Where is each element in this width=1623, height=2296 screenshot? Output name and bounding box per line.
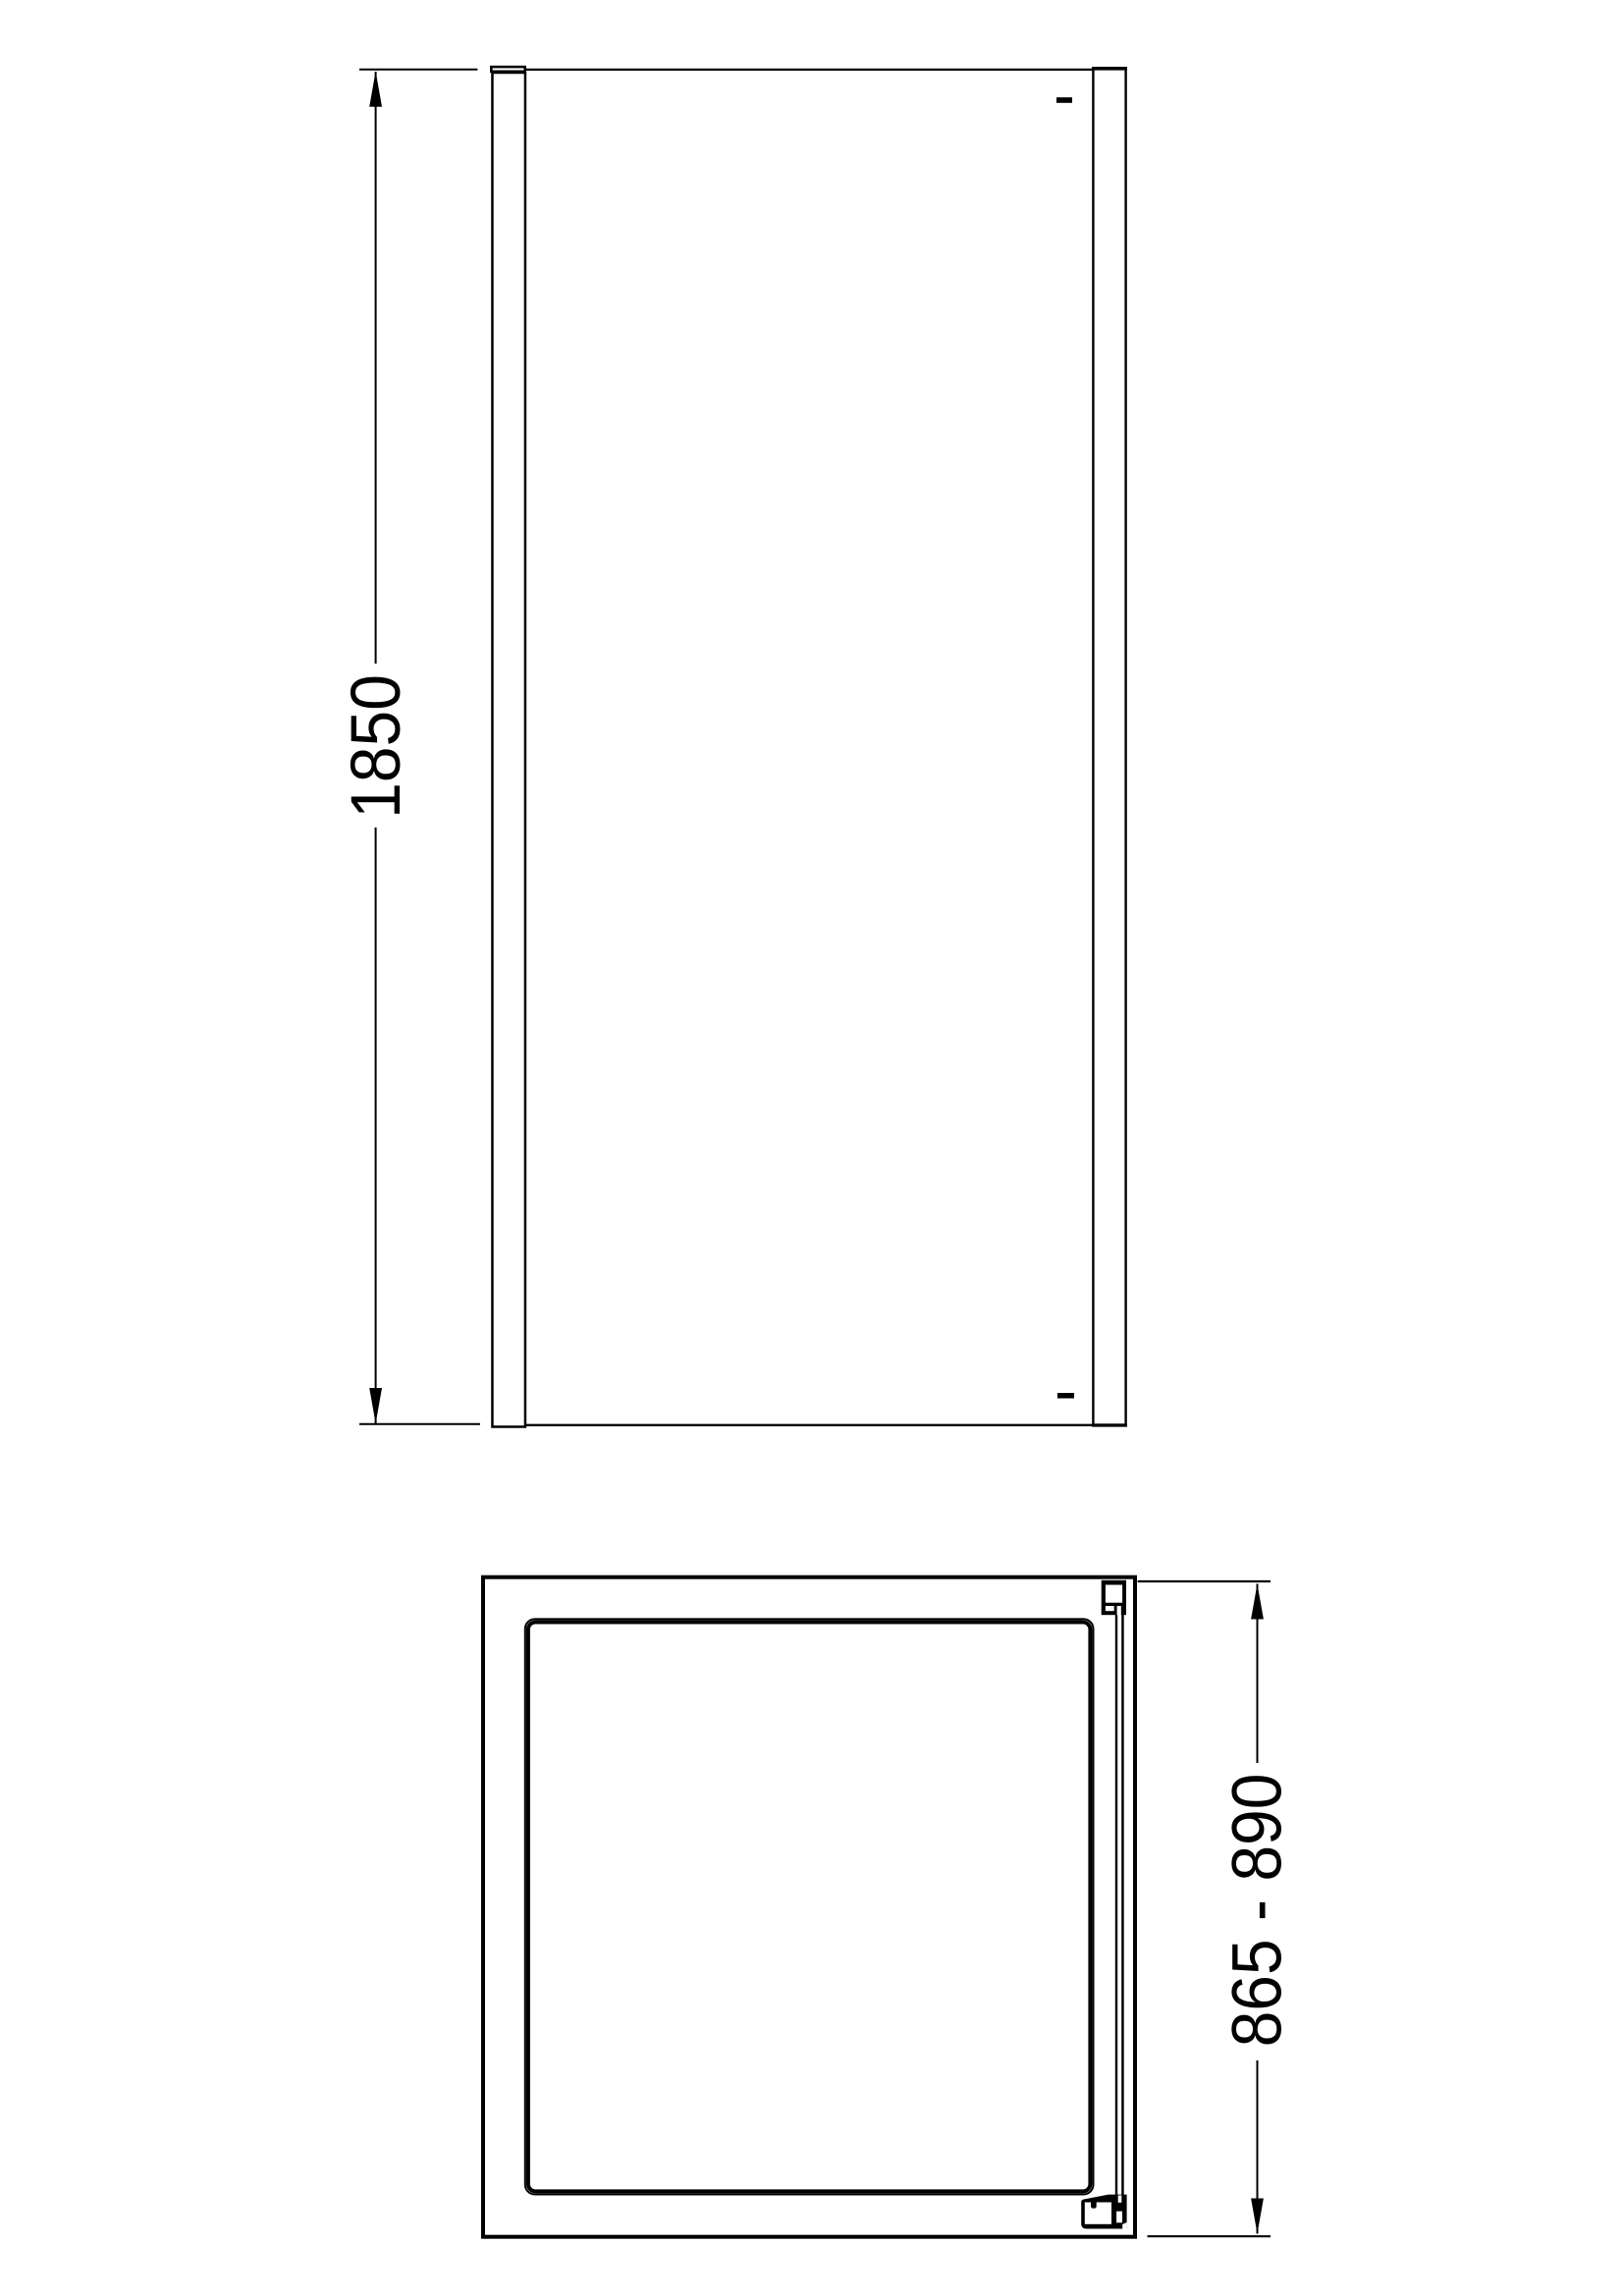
svg-text:1850: 1850 [336,674,414,819]
svg-text:865 - 890: 865 - 890 [1217,1774,1296,2048]
